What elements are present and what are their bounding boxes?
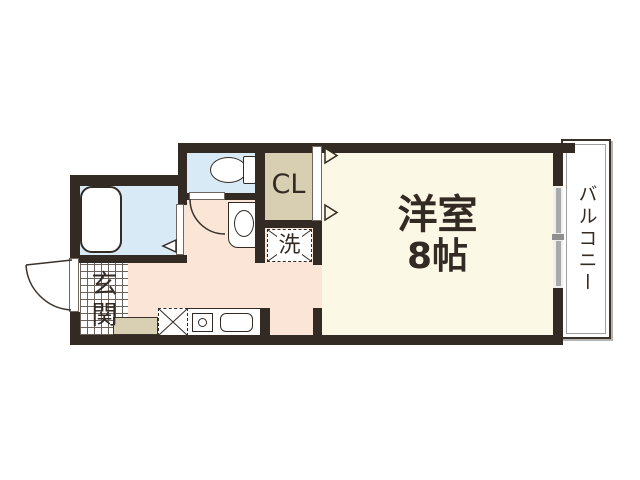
bathroom-folding-door — [176, 204, 184, 255]
toilet-bowl — [210, 157, 247, 183]
bathtub — [80, 186, 122, 253]
wall-closet-bottom — [255, 220, 313, 228]
kitchen-sink — [220, 313, 253, 332]
balcony-label-wrap: バルコニー — [561, 139, 611, 339]
toilet-door-leaf — [189, 192, 225, 200]
entrance-door-leaf — [69, 258, 79, 312]
wall-top-left — [70, 175, 187, 186]
refrigerator-space — [158, 308, 188, 336]
wall-kitchen-stub — [260, 308, 270, 337]
burner-ring-icon — [198, 318, 207, 327]
western-room-size: 8帖 — [322, 239, 553, 275]
closet-label: CL — [265, 171, 312, 198]
wall-bathroom-bottom — [70, 255, 187, 263]
laundry-label-wrap: 洗 — [267, 229, 312, 262]
entrance-label: 玄関 — [89, 270, 115, 332]
western-room-label: 洋室 8帖 — [322, 195, 553, 275]
entrance-door-swing-arc — [26, 265, 71, 310]
closet-sliding-door — [312, 146, 322, 221]
western-room-name: 洋室 — [322, 195, 553, 235]
floorplan-canvas: 洋室 8帖 CL 洗 玄関 バルコニー — [0, 0, 640, 480]
wall-living-stub — [313, 308, 322, 337]
entrance-door-open-leaf — [26, 260, 72, 265]
wall-left-upper — [70, 175, 80, 258]
wall-top-main — [178, 143, 575, 153]
wall-closet-left — [255, 143, 265, 263]
laundry-label: 洗 — [277, 235, 301, 257]
shoe-cabinet — [113, 317, 158, 335]
balcony-label: バルコニー — [577, 184, 596, 294]
wall-closet-right-lower — [313, 220, 322, 265]
vanity-basin — [234, 210, 254, 237]
wall-toilet-door-stub — [178, 193, 189, 200]
